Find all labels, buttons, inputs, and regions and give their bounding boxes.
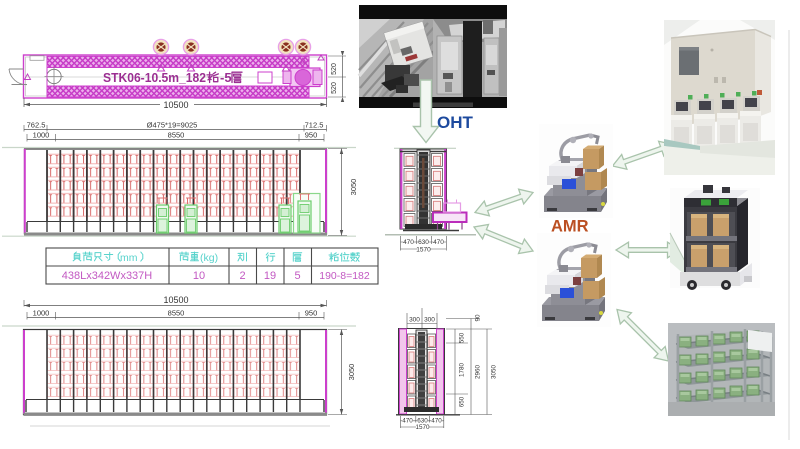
svg-text:2960: 2960 bbox=[475, 365, 482, 380]
svg-text:1570: 1570 bbox=[416, 246, 431, 253]
svg-text:950: 950 bbox=[305, 309, 318, 318]
svg-text:3050: 3050 bbox=[347, 364, 356, 381]
svg-text:520: 520 bbox=[331, 82, 338, 94]
svg-text:3050: 3050 bbox=[491, 365, 498, 380]
svg-text:712.5: 712.5 bbox=[305, 121, 324, 130]
svg-text:1000: 1000 bbox=[33, 131, 50, 140]
svg-text:10: 10 bbox=[193, 270, 205, 282]
svg-text:Ø475*19=9025: Ø475*19=9025 bbox=[147, 121, 198, 130]
svg-text:3050: 3050 bbox=[349, 179, 358, 196]
svg-text:8550: 8550 bbox=[168, 131, 185, 140]
svg-text:1570: 1570 bbox=[415, 424, 430, 431]
svg-text:OHT: OHT bbox=[437, 113, 474, 132]
svg-text:950: 950 bbox=[305, 131, 318, 140]
svg-text:10500: 10500 bbox=[163, 295, 188, 305]
svg-text:10500: 10500 bbox=[163, 100, 188, 110]
svg-text:470: 470 bbox=[403, 239, 414, 246]
svg-text:2: 2 bbox=[239, 270, 245, 282]
svg-text:650: 650 bbox=[459, 396, 466, 407]
svg-text:300: 300 bbox=[424, 317, 435, 324]
svg-text:mm: mm bbox=[120, 252, 138, 264]
svg-text:520: 520 bbox=[331, 63, 338, 75]
svg-text:(kg): (kg) bbox=[200, 252, 218, 264]
svg-text:762.5: 762.5 bbox=[27, 121, 46, 130]
svg-text:438Lx342Wx337H: 438Lx342Wx337H bbox=[62, 270, 153, 282]
svg-text:1000: 1000 bbox=[33, 309, 50, 318]
svg-text:550: 550 bbox=[459, 332, 466, 343]
svg-text:19: 19 bbox=[264, 270, 276, 282]
svg-text:300: 300 bbox=[409, 317, 420, 324]
svg-text:5: 5 bbox=[294, 270, 300, 282]
svg-text:90: 90 bbox=[475, 314, 482, 322]
svg-text:630: 630 bbox=[418, 239, 429, 246]
svg-text:8550: 8550 bbox=[168, 309, 185, 318]
svg-text:190-8=182: 190-8=182 bbox=[319, 270, 370, 282]
svg-text:1780: 1780 bbox=[459, 363, 466, 378]
svg-text:470: 470 bbox=[433, 239, 444, 246]
svg-text:470: 470 bbox=[402, 418, 413, 425]
svg-text:-5: -5 bbox=[220, 70, 232, 85]
svg-text:AMR: AMR bbox=[551, 218, 589, 236]
svg-text:STK06-10.5m_182: STK06-10.5m_182 bbox=[103, 70, 206, 85]
svg-text:470: 470 bbox=[431, 418, 442, 425]
